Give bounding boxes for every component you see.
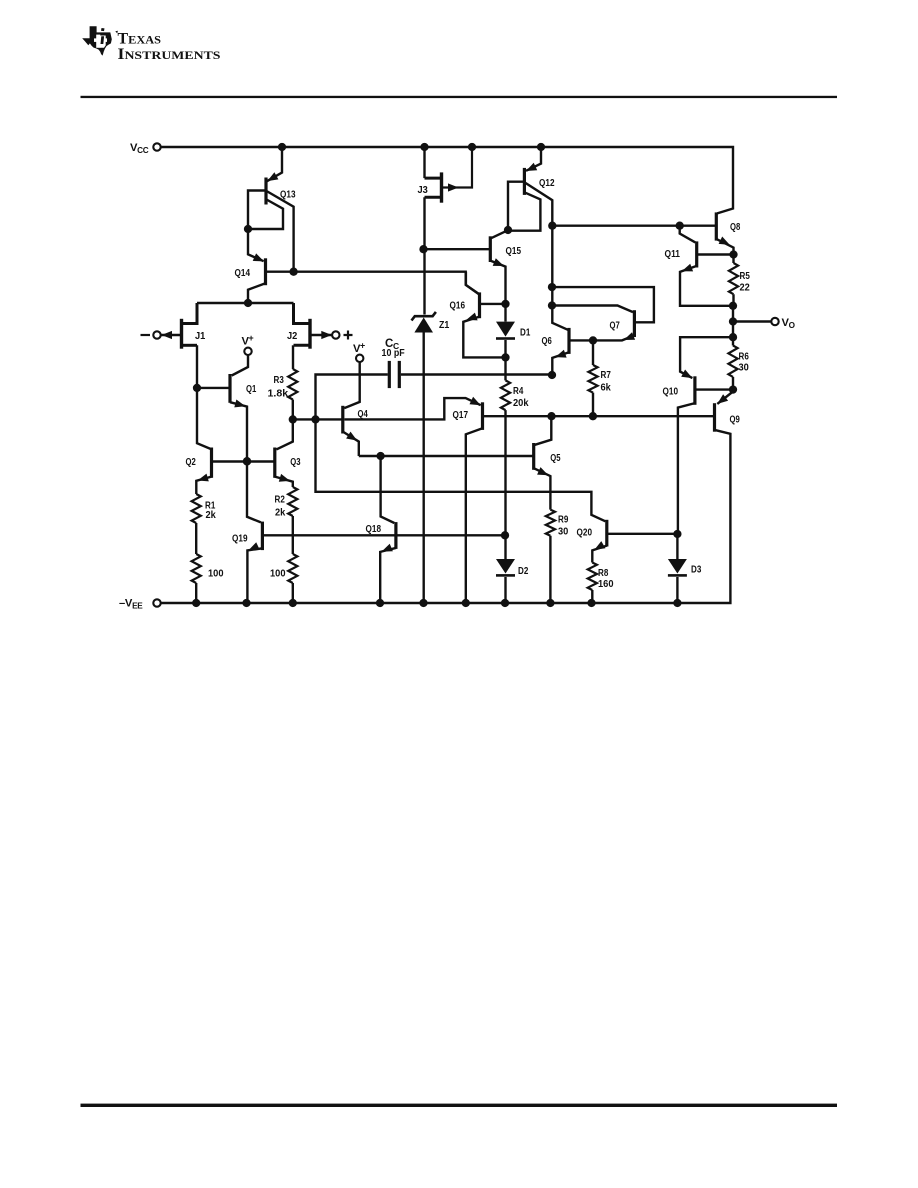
svg-text:2k: 2k (275, 508, 285, 519)
svg-text:R7: R7 (601, 370, 611, 381)
svg-text:Q17: Q17 (453, 410, 469, 421)
svg-text:Q20: Q20 (577, 527, 593, 538)
svg-text:Q5: Q5 (550, 453, 560, 464)
svg-text:Q8: Q8 (730, 222, 740, 233)
svg-text:R4: R4 (513, 386, 523, 397)
svg-text:30: 30 (739, 363, 749, 374)
svg-text:R8: R8 (598, 568, 608, 579)
svg-text:22: 22 (740, 283, 750, 294)
svg-text:Q12: Q12 (539, 178, 555, 189)
svg-text:J1: J1 (195, 331, 205, 342)
svg-text:Q4: Q4 (358, 409, 368, 420)
svg-text:1.8k: 1.8k (268, 389, 289, 400)
svg-text:INSTRUMENTS: INSTRUMENTS (118, 46, 221, 63)
svg-text:20k: 20k (513, 398, 529, 409)
svg-text:Q9: Q9 (730, 414, 740, 425)
svg-text:100: 100 (270, 569, 286, 580)
svg-text:R5: R5 (740, 271, 750, 282)
svg-text:+: + (360, 341, 366, 352)
svg-text:D1: D1 (520, 327, 530, 338)
svg-text:D3: D3 (691, 565, 701, 576)
svg-text:J2: J2 (287, 331, 297, 342)
svg-text:J3: J3 (418, 185, 428, 196)
svg-text:D2: D2 (518, 566, 528, 577)
svg-text:10 pF: 10 pF (382, 347, 406, 359)
svg-text:R6: R6 (739, 352, 749, 363)
svg-text:Q11: Q11 (665, 249, 681, 260)
svg-text:Q7: Q7 (610, 320, 620, 331)
svg-text:+: + (249, 333, 255, 344)
svg-text:Q2: Q2 (186, 457, 196, 468)
svg-text:Q10: Q10 (663, 386, 679, 397)
svg-text:Q15: Q15 (506, 246, 522, 257)
svg-text:100: 100 (208, 569, 224, 580)
svg-text:2k: 2k (206, 510, 216, 521)
svg-text:Q6: Q6 (542, 336, 552, 347)
svg-text:Q16: Q16 (450, 300, 466, 311)
svg-text:Z1: Z1 (439, 320, 449, 331)
svg-text:160: 160 (598, 579, 614, 590)
svg-text:Q14: Q14 (235, 268, 251, 279)
svg-text:30: 30 (558, 527, 568, 538)
svg-text:Q3: Q3 (290, 457, 300, 468)
svg-text:Q19: Q19 (232, 534, 248, 545)
svg-text:R9: R9 (558, 514, 568, 525)
svg-text:Q18: Q18 (366, 524, 382, 535)
svg-text:Q13: Q13 (280, 190, 296, 201)
svg-text:6k: 6k (601, 382, 611, 393)
svg-text:R3: R3 (274, 375, 284, 386)
svg-text:Q1: Q1 (246, 384, 256, 395)
svg-text:R2: R2 (275, 495, 285, 506)
